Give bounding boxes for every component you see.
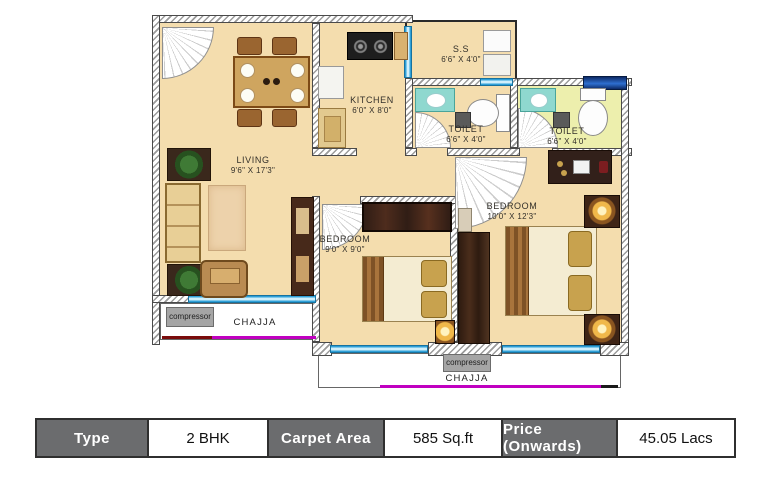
toilet-bowl: [467, 99, 499, 127]
compressor-box: compressor: [443, 354, 491, 372]
dining-chair: [237, 109, 262, 127]
wardrobe: [362, 202, 452, 232]
wall: [510, 78, 518, 148]
kitchen-name: KITCHEN: [332, 95, 412, 106]
chajja-edge-line: [162, 336, 212, 339]
wall: [312, 342, 332, 356]
bedroom-master-label: BEDROOM 10'0" X 12'3": [472, 201, 552, 222]
bedroom-small-name: BEDROOM: [305, 234, 385, 245]
wall: [152, 295, 190, 303]
dining-chair: [272, 109, 297, 127]
living-name: LIVING: [208, 155, 298, 166]
dresser: [548, 150, 612, 184]
bed-small: [362, 256, 452, 322]
stove: [347, 32, 393, 60]
washbasin: [415, 88, 455, 112]
service-slab-label: S.S 6'6" X 4'0": [421, 44, 501, 65]
toilet1-name: TOILET: [428, 124, 504, 135]
chajja-left-label: CHAJJA: [225, 317, 285, 328]
type-header: Type: [35, 418, 149, 458]
price-header: Price (Onwards): [501, 418, 618, 458]
dining-chair: [237, 37, 262, 55]
service-slab-name: S.S: [421, 44, 501, 55]
price-value: 45.05 Lacs: [616, 418, 736, 458]
bedroom-master-name: BEDROOM: [472, 201, 552, 212]
spec-table: Type 2 BHK Carpet Area 585 Sq.ft Price (…: [35, 418, 736, 458]
plant: [167, 148, 211, 181]
service-slab-dims: 6'6" X 4'0": [421, 55, 501, 65]
washbasin: [520, 88, 556, 112]
carpet-area-value: 585 Sq.ft: [383, 418, 503, 458]
toilet1-dims: 6'6" X 4'0": [428, 135, 504, 145]
wall: [312, 148, 357, 156]
bedroom-small-dims: 9'0" X 9'0": [305, 245, 385, 255]
toilet2-name: TOILET: [527, 126, 607, 137]
wall: [405, 148, 417, 156]
compressor-box: compressor: [166, 307, 214, 327]
chajja-edge-line: [601, 385, 618, 388]
living-dims: 9'6" X 17'3": [208, 166, 298, 176]
dining-table: [233, 56, 310, 108]
wall: [621, 78, 629, 348]
wall: [447, 148, 520, 156]
toilet2-dims: 6'6" X 4'0": [527, 137, 607, 147]
sofa: [165, 183, 201, 263]
kitchen-counter: [394, 32, 408, 60]
bedroom-master-dims: 10'0" X 12'3": [472, 212, 552, 222]
wall: [152, 15, 413, 23]
chajja-bottom-label: CHAJJA: [435, 373, 499, 384]
toilet1-window: [480, 78, 513, 86]
living-label: LIVING 9'6" X 17'3": [208, 155, 298, 176]
kitchen-dims: 6'0" X 8'0": [332, 106, 412, 116]
type-value: 2 BHK: [147, 418, 269, 458]
wardrobe: [458, 232, 490, 344]
rug: [208, 185, 246, 251]
nightstand-lamp: [584, 314, 620, 345]
carpet-area-header: Carpet Area: [267, 418, 385, 458]
chajja-edge-line: [380, 385, 603, 388]
bedroom-small-label: BEDROOM 9'0" X 9'0": [305, 234, 385, 255]
bed-master: [505, 226, 597, 316]
dining-chair: [272, 37, 297, 55]
bedroom-master-window: [502, 345, 600, 353]
kitchen-label: KITCHEN 6'0" X 8'0": [332, 95, 412, 116]
nightstand-lamp: [584, 195, 620, 228]
floor-plan-page: compressor CHAJJA compressor CHAJJA LIVI…: [0, 0, 780, 500]
chajja-edge-line: [212, 336, 316, 339]
wardrobe-panel: [458, 208, 472, 232]
toilet1-label: TOILET 6'6" X 4'0": [428, 124, 504, 145]
bedroom-small-window: [330, 345, 428, 353]
nightstand-lamp: [435, 320, 455, 344]
toilet2-label: TOILET 6'6" X 4'0": [527, 126, 607, 147]
armchair: [200, 260, 248, 298]
